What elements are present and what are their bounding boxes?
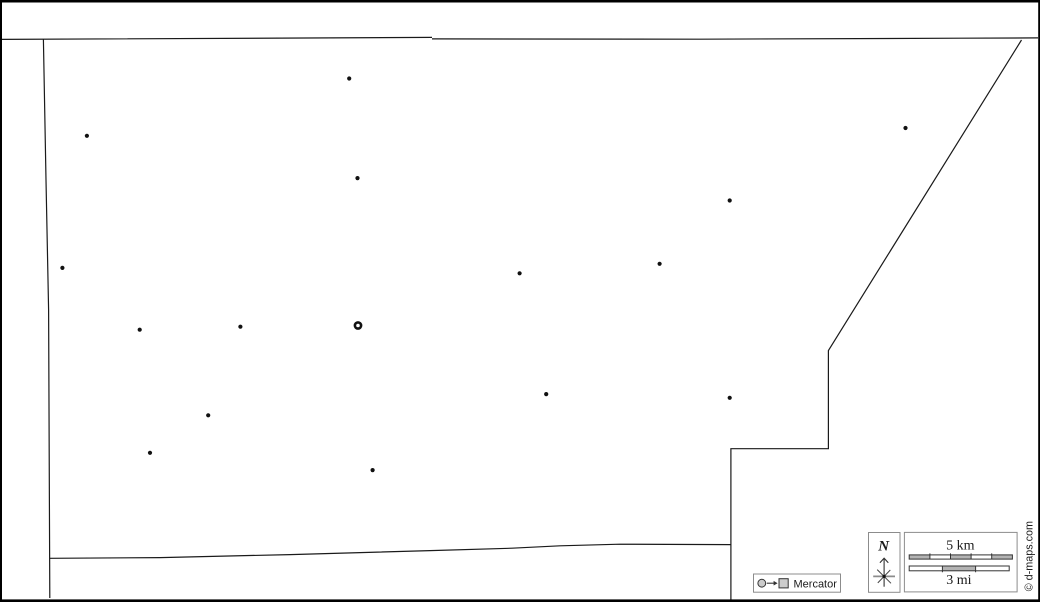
svg-text:5 km: 5 km	[946, 538, 975, 553]
svg-text:Mercator: Mercator	[794, 579, 838, 591]
svg-text:N: N	[877, 539, 890, 555]
svg-text:3 mi: 3 mi	[946, 573, 971, 588]
svg-text:© d-maps.com: © d-maps.com	[1023, 521, 1035, 591]
